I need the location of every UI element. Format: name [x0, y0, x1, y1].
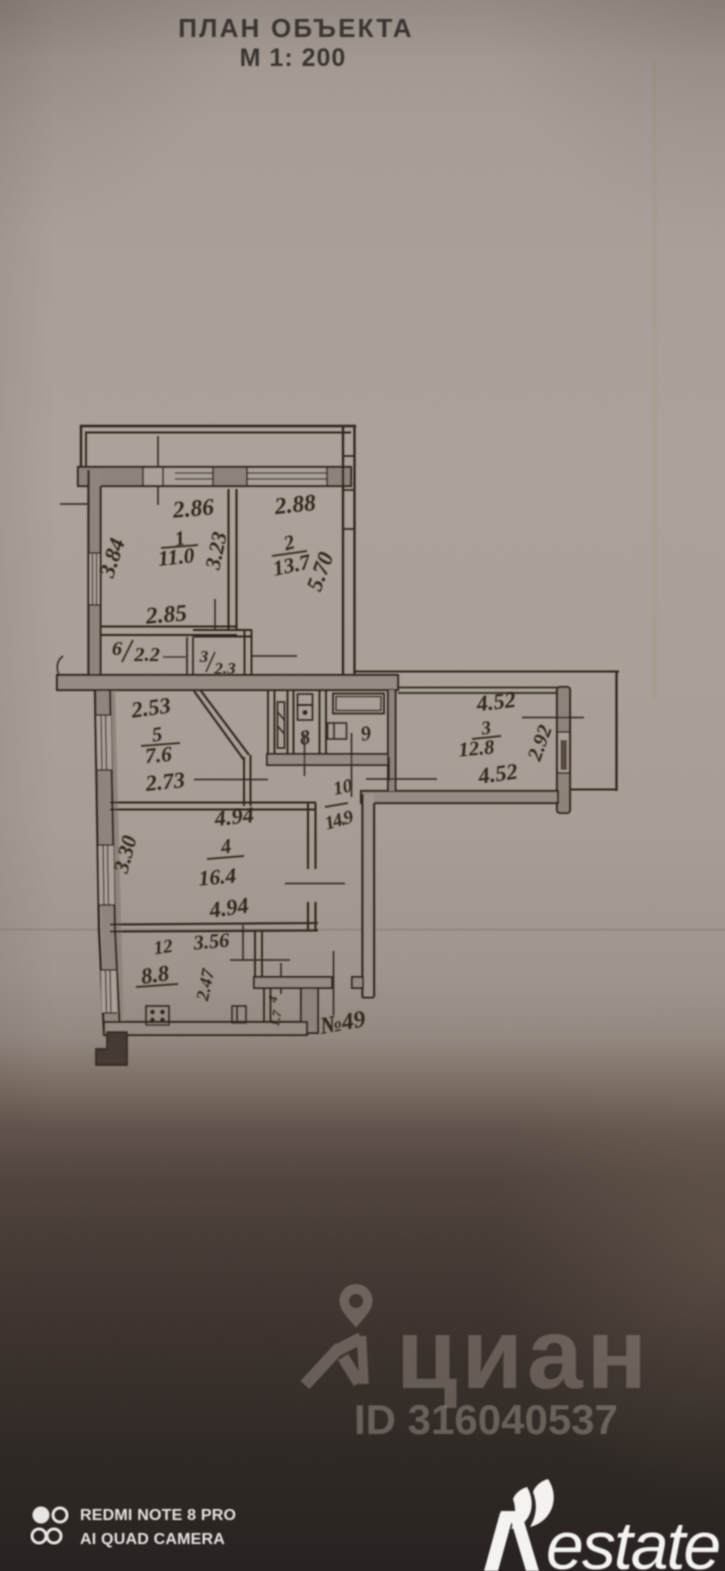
svg-text:16.4: 16.4 — [198, 863, 238, 890]
svg-text:2.73: 2.73 — [143, 767, 186, 796]
svg-text:2.85: 2.85 — [144, 600, 188, 630]
svg-text:12.8: 12.8 — [458, 737, 496, 762]
svg-text:3: 3 — [199, 647, 209, 666]
svg-text:6: 6 — [112, 638, 123, 660]
svg-text:2.86: 2.86 — [171, 494, 215, 524]
svg-text:3.56: 3.56 — [192, 929, 231, 954]
svg-text:2.2: 2.2 — [133, 644, 160, 666]
svg-text:4.52: 4.52 — [474, 687, 517, 717]
svg-text:2.88: 2.88 — [272, 490, 317, 520]
svg-text:ID 316040537: ID 316040537 — [354, 1396, 618, 1443]
svg-text:1.7: 1.7 — [268, 1009, 285, 1028]
svg-text:estate: estate — [546, 1508, 719, 1571]
svg-text:12: 12 — [152, 936, 174, 960]
svg-text:2.3: 2.3 — [213, 659, 236, 678]
svg-text:7.6: 7.6 — [144, 742, 173, 768]
svg-text:М 1: 200: М 1: 200 — [240, 44, 347, 72]
svg-text:циан: циан — [396, 1298, 651, 1410]
svg-text:REDMI NOTE 8 PRO: REDMI NOTE 8 PRO — [80, 1507, 236, 1524]
svg-text:11.0: 11.0 — [157, 543, 196, 571]
svg-text:ПЛАН ОБЪЕКТА: ПЛАН ОБЪЕКТА — [178, 13, 414, 43]
svg-text:AI QUAD CAMERA: AI QUAD CAMERA — [80, 1531, 225, 1548]
svg-text:4.94: 4.94 — [212, 802, 255, 831]
